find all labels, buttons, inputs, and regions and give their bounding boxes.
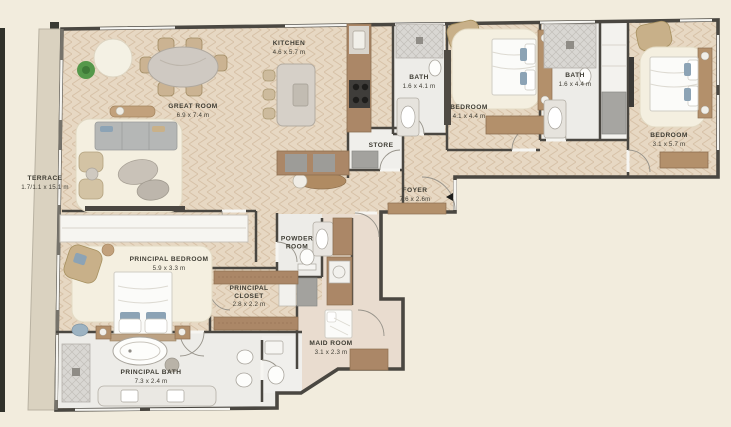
sink <box>167 390 184 402</box>
sofa-pillow-tan <box>152 126 165 132</box>
round-rug <box>94 39 132 77</box>
storage-box <box>352 151 378 168</box>
planter-strip <box>0 28 5 412</box>
pillow-blue <box>520 72 527 85</box>
bench <box>660 152 708 168</box>
cabinet-gray <box>285 154 307 172</box>
sink <box>121 390 138 402</box>
cabinet <box>333 218 352 255</box>
furniture-store <box>352 151 378 168</box>
wc-sink <box>265 341 283 354</box>
pillow-blue <box>520 48 527 61</box>
pillow-blue <box>684 88 691 101</box>
tv-panel <box>85 206 185 211</box>
kitchen-sink <box>353 31 365 49</box>
bidet <box>236 373 252 387</box>
stool <box>263 108 275 119</box>
toilet <box>579 68 591 84</box>
sink <box>316 229 328 249</box>
stove <box>349 80 370 108</box>
pillow-blue <box>684 63 691 76</box>
wc-toilet <box>268 366 284 384</box>
pouf <box>72 324 88 336</box>
stool <box>165 358 179 372</box>
toilet <box>300 249 314 265</box>
wardrobe-row <box>214 271 298 284</box>
side-table <box>86 168 98 180</box>
table-lamp <box>116 107 124 115</box>
sofa <box>95 122 177 150</box>
toilet <box>237 350 253 364</box>
pillow <box>327 312 336 322</box>
wardrobe-row <box>214 317 298 330</box>
toilet <box>429 60 441 76</box>
armchair <box>79 179 103 199</box>
pillow <box>145 319 167 333</box>
double-vanity <box>98 386 216 406</box>
floor-plan-drawing <box>0 0 731 427</box>
laundry-unit <box>602 92 626 134</box>
island-sink <box>293 84 308 106</box>
tv-panel <box>444 50 451 125</box>
stool <box>263 89 275 100</box>
sink <box>401 106 415 128</box>
bathtub <box>113 337 167 365</box>
cabinet-gray <box>297 278 317 306</box>
tv-panel <box>629 57 634 107</box>
round-side-table <box>293 174 307 188</box>
washer <box>329 261 350 283</box>
floor-plan-canvas: TERRACE 1.7/1.1 x 15.1 m GREAT ROOM 6.9 … <box>0 0 731 427</box>
cabinet-gray <box>313 154 335 172</box>
dresser <box>486 116 550 134</box>
dining-table <box>148 47 218 87</box>
pillow <box>119 319 141 333</box>
stool <box>263 70 275 81</box>
maid-counter <box>350 349 388 370</box>
sofa-pillow-blue <box>100 126 113 132</box>
sink <box>548 107 562 129</box>
entry-bench <box>388 203 446 214</box>
side-table <box>102 244 114 256</box>
